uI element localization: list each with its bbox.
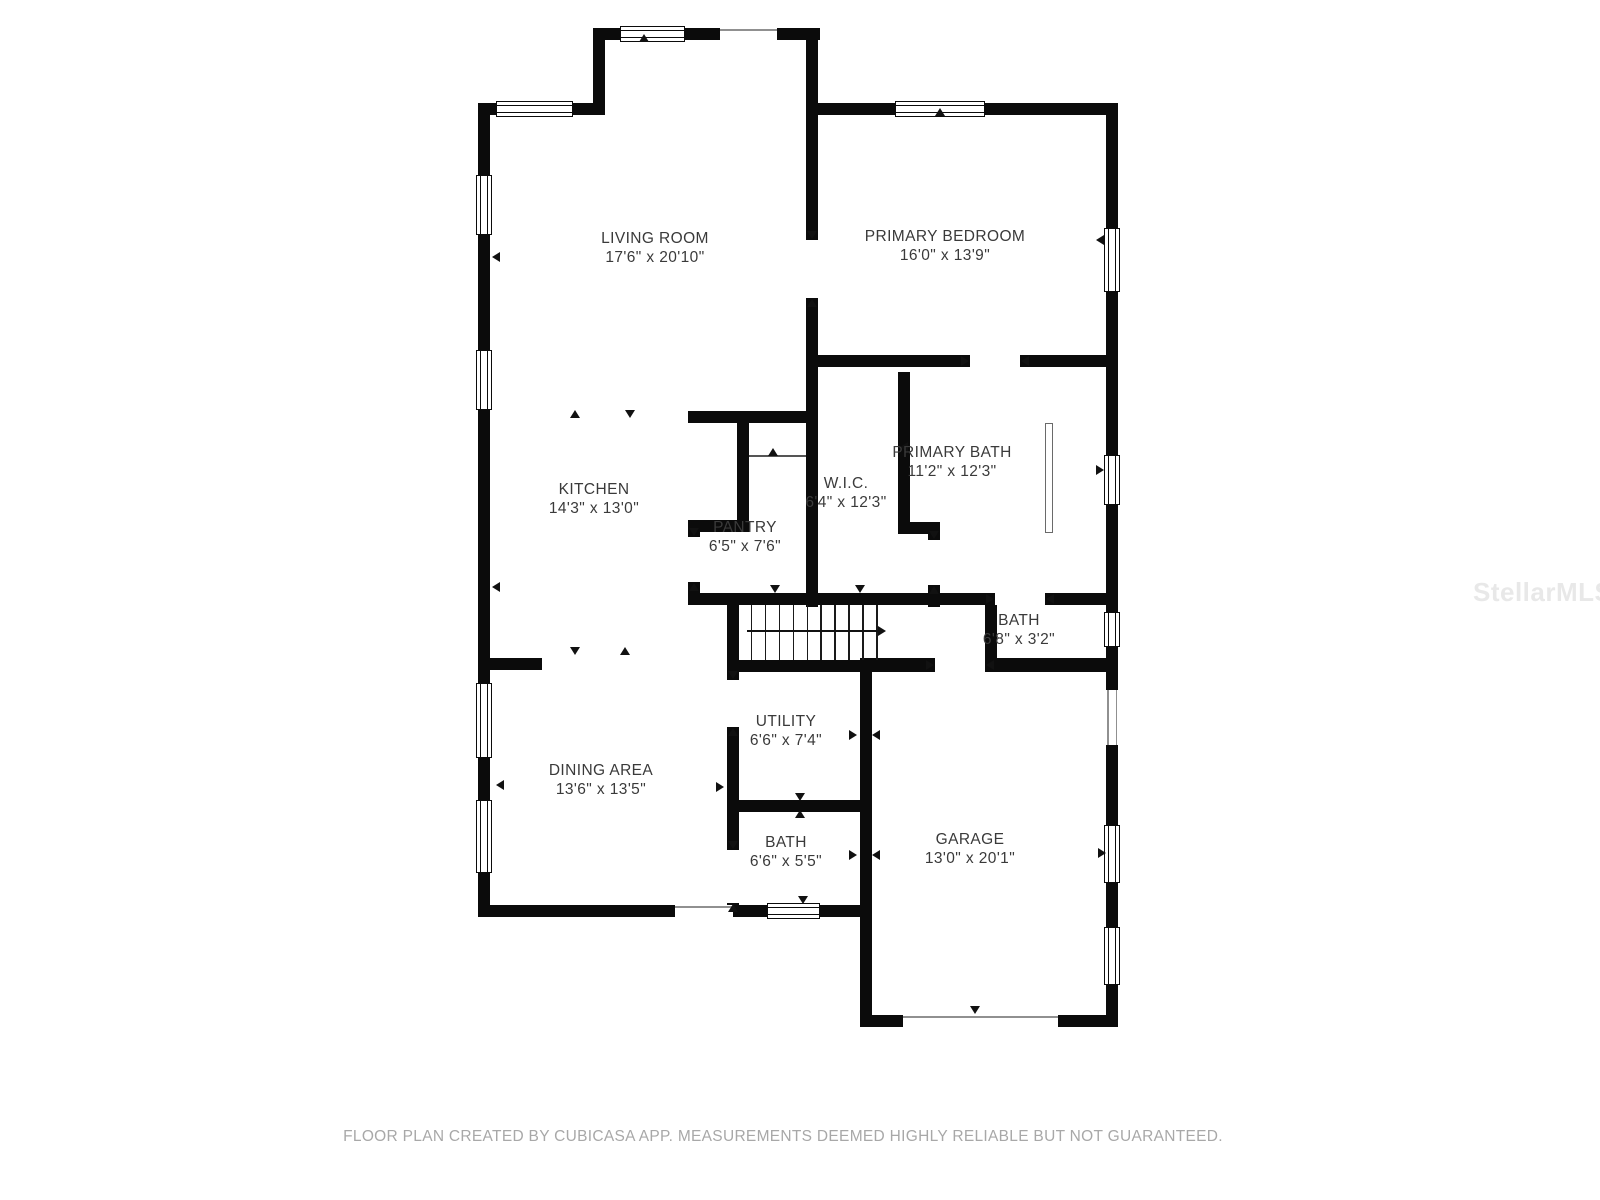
door-arrow-icon	[689, 583, 699, 591]
plan-mark-icon	[570, 410, 580, 418]
room-name: DINING AREA	[549, 761, 653, 780]
door-gap	[806, 240, 818, 298]
stair-riser	[751, 605, 753, 660]
window	[1104, 612, 1120, 647]
door-arrow-icon	[986, 660, 994, 670]
wall	[478, 658, 542, 670]
room-dimensions: 14'3" x 13'0"	[549, 499, 639, 518]
plan-mark-icon	[639, 34, 649, 42]
window	[620, 26, 685, 42]
wall-opening	[903, 1015, 1058, 1027]
room-label-primary-bedroom: PRIMARY BEDROOM16'0" x 13'9"	[865, 227, 1025, 265]
door-arrow-icon	[1046, 594, 1054, 604]
room-dimensions: 13'0" x 20'1"	[925, 849, 1015, 868]
door-arrow-icon	[807, 231, 817, 239]
plan-mark-icon	[1096, 465, 1104, 475]
stair-riser	[862, 605, 864, 660]
wall-opening	[1106, 690, 1118, 745]
room-dimensions: 11'2" x 12'3"	[892, 462, 1011, 481]
room-name: PANTRY	[709, 518, 781, 537]
plan-mark-icon	[492, 252, 500, 262]
door-arrow-icon	[728, 671, 738, 679]
plan-mark-icon	[849, 850, 857, 860]
floor-plan-drawing: LIVING ROOM17'6" x 20'10"PRIMARY BEDROOM…	[0, 0, 1600, 1200]
window	[1104, 228, 1120, 292]
plan-mark-icon	[872, 850, 880, 860]
wall-opening	[675, 905, 733, 917]
door-arrow-icon	[961, 356, 969, 366]
room-name: W.I.C.	[805, 474, 886, 493]
footer-disclaimer: FLOOR PLAN CREATED BY CUBICASA APP. MEAS…	[343, 1128, 1223, 1146]
staircase	[737, 605, 890, 660]
opening-line	[1107, 690, 1109, 745]
room-name: BATH	[983, 611, 1055, 630]
opening-line	[903, 1016, 1058, 1018]
stair-riser	[848, 605, 850, 660]
door-arrow-icon	[728, 841, 738, 849]
room-label-bath-lower: BATH6'6" x 5'5"	[750, 833, 822, 871]
room-label-dining-area: DINING AREA13'6" x 13'5"	[549, 761, 653, 799]
plan-mark-icon	[770, 585, 780, 593]
door-arrow-icon	[1021, 356, 1029, 366]
room-label-living-room: LIVING ROOM17'6" x 20'10"	[601, 229, 709, 267]
door-gap	[688, 537, 700, 582]
plan-mark-icon	[620, 647, 630, 655]
plan-mark-icon	[1096, 235, 1104, 245]
door-arrow-icon	[728, 728, 738, 736]
stair-riser	[820, 605, 822, 660]
shower-glass-panel	[1045, 423, 1053, 533]
wall	[727, 660, 872, 672]
opening-line	[720, 29, 777, 31]
plan-mark-icon	[795, 810, 805, 818]
door-gap	[935, 658, 985, 672]
window	[767, 903, 820, 919]
wall-opening	[720, 28, 777, 40]
room-label-kitchen: KITCHEN14'3" x 13'0"	[549, 480, 639, 518]
room-label-garage: GARAGE13'0" x 20'1"	[925, 830, 1015, 868]
plan-mark-icon	[798, 896, 808, 904]
stair-direction-arrow	[747, 630, 878, 632]
room-name: KITCHEN	[549, 480, 639, 499]
door-arrow-icon	[986, 594, 994, 604]
room-dimensions: 6'6" x 7'4"	[750, 731, 822, 750]
wall	[860, 658, 872, 1027]
plan-mark-icon	[795, 793, 805, 801]
stellar-mls-watermark: StellarMLS	[1473, 577, 1600, 608]
wall	[806, 28, 818, 367]
door-gap	[727, 680, 739, 727]
room-name: GARAGE	[925, 830, 1015, 849]
plan-mark-icon	[492, 582, 500, 592]
stair-riser	[793, 605, 795, 660]
room-name: PRIMARY BEDROOM	[865, 227, 1025, 246]
door-gap	[995, 593, 1045, 605]
room-label-wic: W.I.C.6'4" x 12'3"	[805, 474, 886, 512]
stair-riser	[807, 605, 809, 660]
room-name: UTILITY	[750, 712, 822, 731]
window	[496, 101, 573, 117]
wall	[688, 411, 818, 423]
door-gap	[727, 850, 739, 903]
room-label-primary-bath: PRIMARY BATH11'2" x 12'3"	[892, 443, 1011, 481]
room-name: PRIMARY BATH	[892, 443, 1011, 462]
room-dimensions: 6'8" x 3'2"	[983, 630, 1055, 649]
room-dimensions: 17'6" x 20'10"	[601, 248, 709, 267]
floor-plan-page: LIVING ROOM17'6" x 20'10"PRIMARY BEDROOM…	[0, 0, 1600, 1200]
door-gap	[970, 355, 1020, 367]
plan-mark-icon	[849, 730, 857, 740]
plan-mark-icon	[935, 108, 945, 116]
room-dimensions: 6'6" x 5'5"	[750, 852, 822, 871]
plan-mark-icon	[970, 1006, 980, 1014]
window	[1104, 927, 1120, 985]
plan-mark-icon	[570, 647, 580, 655]
plan-mark-icon	[872, 730, 880, 740]
window	[476, 800, 492, 873]
door-arrow-icon	[929, 586, 939, 594]
opening-line	[675, 906, 733, 908]
door-gap	[928, 540, 940, 585]
door-arrow-icon	[728, 904, 738, 912]
window	[476, 683, 492, 758]
stair-riser	[765, 605, 767, 660]
plan-mark-icon	[1098, 848, 1106, 858]
plan-mark-icon	[768, 448, 778, 456]
room-label-pantry: PANTRY6'5" x 7'6"	[709, 518, 781, 556]
door-arrow-icon	[929, 531, 939, 539]
room-name: BATH	[750, 833, 822, 852]
window	[476, 350, 492, 410]
wall	[872, 658, 1118, 672]
window	[1104, 455, 1120, 505]
window	[476, 175, 492, 235]
wall	[593, 28, 605, 115]
door-arrow-icon	[807, 299, 817, 307]
stair-riser	[779, 605, 781, 660]
room-label-utility: UTILITY6'6" x 7'4"	[750, 712, 822, 750]
wall	[737, 423, 749, 522]
window	[1104, 825, 1120, 883]
plan-mark-icon	[716, 782, 724, 792]
plan-mark-icon	[855, 585, 865, 593]
plan-mark-icon	[496, 780, 504, 790]
room-dimensions: 13'6" x 13'5"	[549, 780, 653, 799]
room-name: LIVING ROOM	[601, 229, 709, 248]
room-label-bath-upper: BATH6'8" x 3'2"	[983, 611, 1055, 649]
room-dimensions: 16'0" x 13'9"	[865, 246, 1025, 265]
plan-mark-icon	[625, 410, 635, 418]
opening-line	[1116, 690, 1118, 745]
door-arrow-icon	[689, 528, 699, 536]
stair-riser	[834, 605, 836, 660]
room-dimensions: 6'4" x 12'3"	[805, 493, 886, 512]
room-dimensions: 6'5" x 7'6"	[709, 537, 781, 556]
stair-arrow-head-icon	[878, 626, 886, 636]
door-arrow-icon	[926, 660, 934, 670]
